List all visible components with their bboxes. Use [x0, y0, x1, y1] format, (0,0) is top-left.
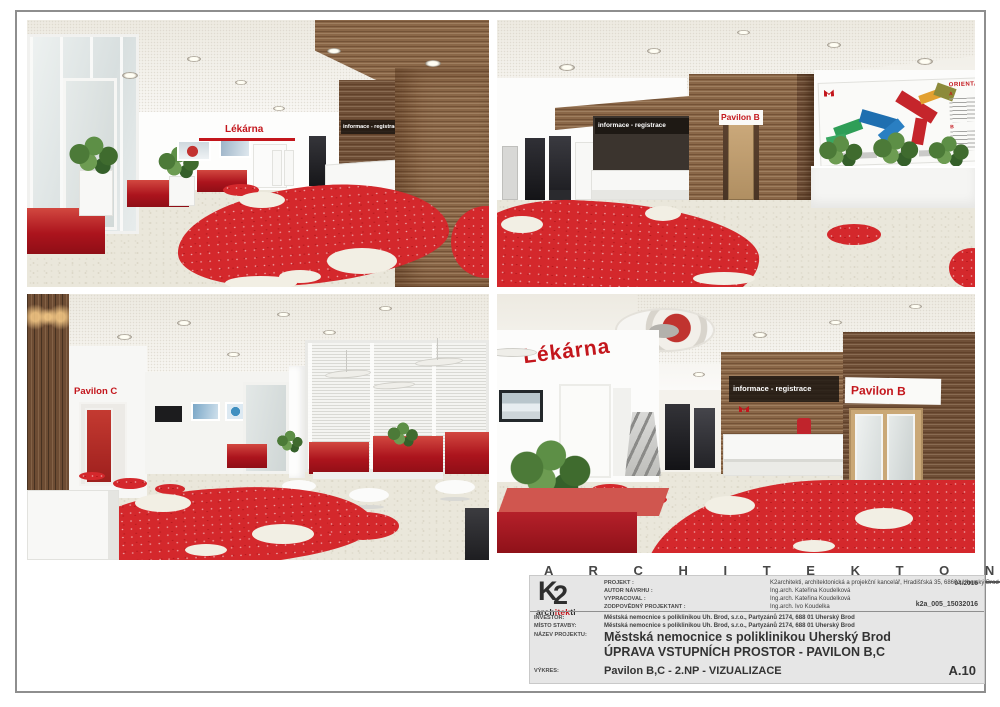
k2-logo: K 2 architekti	[536, 578, 598, 618]
round-table	[435, 480, 475, 494]
reception-desk	[591, 170, 693, 200]
ceiling-light	[187, 56, 201, 62]
row-value: Ing.arch. Kateřina Koudelková	[770, 596, 850, 602]
pavilon-sign: Pavilon B	[845, 377, 941, 405]
info-sign-label: informace - registrace	[595, 118, 689, 134]
ceiling-light	[122, 72, 138, 79]
floor-white-ellipse	[501, 216, 543, 233]
ceiling-light	[273, 106, 285, 111]
ceiling-light	[827, 42, 841, 48]
wall-picture	[177, 140, 211, 161]
floor-white-ellipse	[855, 508, 913, 529]
round-table	[349, 488, 389, 502]
red-sofa	[309, 442, 369, 474]
legend-section-b: B	[950, 124, 954, 130]
project-label: NÁZEV PROJEKTU:	[534, 632, 587, 638]
row-label: PROJEKT :	[604, 580, 634, 586]
floor-white-ellipse	[327, 248, 397, 274]
render-top-right: informace - registrace Pavilon B ORIENTA…	[497, 20, 975, 287]
row-value: Ing.arch. Ivo Koudelka	[770, 604, 830, 610]
ceiling-light	[177, 320, 191, 326]
k2-logo-sub3: ti	[570, 607, 576, 617]
ceiling-light	[117, 334, 132, 340]
legend-section-a: A	[949, 91, 953, 97]
floor-white-ellipse	[225, 276, 297, 287]
vending-machine	[272, 150, 282, 186]
lekarna-sign: Lékárna	[225, 124, 263, 135]
row-label: VYPRACOVAL :	[604, 596, 646, 602]
sign-red-bar	[199, 138, 295, 141]
ceiling-light	[277, 312, 290, 317]
doorway-door	[728, 124, 754, 200]
lamp-stem	[346, 350, 347, 372]
ceiling-light	[917, 58, 933, 65]
ceiling-light	[235, 80, 247, 85]
vending-machine	[284, 150, 294, 186]
ceiling-light	[227, 352, 240, 357]
planter-plants	[925, 136, 973, 168]
project-title-line1: Městská nemocnice s poliklinikou Uherský…	[604, 630, 891, 644]
ceiling-light	[425, 60, 441, 67]
drawing-label: VÝKRES:	[534, 668, 559, 674]
plant	[385, 422, 421, 448]
red-sofa	[445, 432, 489, 474]
drawing-number: A.10	[949, 663, 976, 678]
red-sofa	[227, 444, 267, 468]
orientation-title: ORIENTAČ	[949, 81, 975, 88]
vending-machine-dark	[309, 136, 326, 186]
document-number: k2a_005_15032016	[916, 601, 978, 608]
info-kiosk	[502, 146, 518, 200]
ceiling-light	[737, 30, 750, 35]
plant	[65, 136, 123, 176]
planter	[79, 170, 113, 216]
ceiling-light	[559, 64, 575, 71]
pavilon-sign-label: Pavilon B	[845, 377, 941, 405]
info-sign-label: informace - registrace	[341, 120, 399, 134]
floor-white-ellipse	[645, 206, 681, 221]
row-value: Městská nemocnice s poliklinikou Uh. Bro…	[604, 623, 855, 629]
ceiling-light	[379, 306, 392, 311]
render-top-left: Lékárna informace - registrace	[27, 20, 489, 287]
reception-desk	[27, 490, 119, 560]
ceiling-light	[693, 372, 705, 377]
vending-machine-dark	[694, 408, 715, 468]
floor-white-ellipse	[135, 494, 191, 512]
legend-lines	[949, 97, 975, 122]
planter-plants	[869, 132, 923, 168]
floor-white-ellipse	[705, 496, 755, 515]
planter-box	[811, 166, 975, 208]
info-sign-label: informace - registrace	[729, 376, 839, 402]
sheet-frame: Lékárna informace - registrace	[15, 10, 986, 693]
row-label: MÍSTO STAVBY:	[534, 623, 576, 629]
row-label: ZODPOVĚDNÝ PROJEKTANT :	[604, 604, 686, 610]
row-right-value: 04/2016	[955, 580, 979, 587]
reception-desk	[723, 434, 845, 476]
planter	[169, 176, 195, 206]
pavilon-sign: Pavilon C	[74, 386, 117, 397]
title-block: K 2 architekti PROJEKT : K2architekti, a…	[529, 575, 985, 684]
k2-logo-2: 2	[553, 582, 565, 609]
row-label: AUTOR NÁVRHU :	[604, 588, 653, 594]
vending-machine-dark	[549, 136, 571, 200]
red-bench-front	[497, 512, 637, 553]
row-value: Městská nemocnice s poliklinikou Uh. Bro…	[604, 615, 855, 621]
red-floor-dot	[79, 472, 105, 480]
wall-picture	[219, 139, 251, 158]
red-floor-circle	[327, 512, 399, 540]
ceiling-light	[323, 330, 336, 335]
printer-cabinet	[465, 508, 489, 560]
floor-white-ellipse	[252, 524, 314, 544]
vending-machine-dark	[525, 138, 545, 200]
wall-picture	[191, 402, 220, 421]
ceiling-light	[909, 304, 922, 309]
ceiling-light	[327, 48, 341, 54]
floor-white-ellipse	[239, 192, 285, 208]
white-column	[289, 366, 305, 478]
vending-machine-dark	[665, 404, 690, 470]
red-floor-circle	[827, 224, 881, 245]
info-sign-band: informace - registrace	[595, 118, 689, 134]
plant	[275, 430, 305, 454]
floor-white-ellipse	[185, 544, 227, 556]
reception-chair	[797, 418, 811, 435]
wall-picture	[499, 390, 543, 422]
ceiling-light	[753, 332, 767, 338]
red-floor-dot	[155, 484, 185, 494]
floor-white-ellipse	[693, 272, 755, 285]
sofa-base	[313, 472, 443, 479]
ceiling-light	[829, 320, 842, 325]
ceiling-light	[647, 48, 661, 54]
row-label: INVESTOR:	[534, 615, 564, 621]
pavilon-sign-label: Pavilon B	[719, 110, 763, 125]
render-bottom-left: Pavilon C	[27, 294, 489, 560]
info-sign-band: informace - registrace	[729, 376, 839, 402]
divider-line	[530, 611, 984, 612]
project-title-line2: ÚPRAVA VSTUPNÍCH PROSTOR - PAVILON B,C	[604, 645, 885, 659]
red-floor-dot	[113, 478, 147, 489]
lamp-stem	[437, 338, 438, 360]
hospital-logo-mark	[824, 89, 834, 96]
row-value: Ing.arch. Kateřina Koudelková	[770, 588, 850, 594]
floor-white-ellipse	[793, 540, 835, 552]
render-bottom-right: Lékárna informace - registrace Pavilon B	[497, 294, 975, 553]
tv-screen	[155, 406, 182, 422]
drawing-title: Pavilon B,C - 2.NP - VIZUALIZACE	[604, 665, 782, 677]
pavilon-sign: Pavilon B	[719, 110, 763, 125]
wood-wall-lights	[27, 302, 69, 332]
planter-plants	[815, 136, 867, 168]
info-sign-band: informace - registrace	[341, 120, 399, 134]
